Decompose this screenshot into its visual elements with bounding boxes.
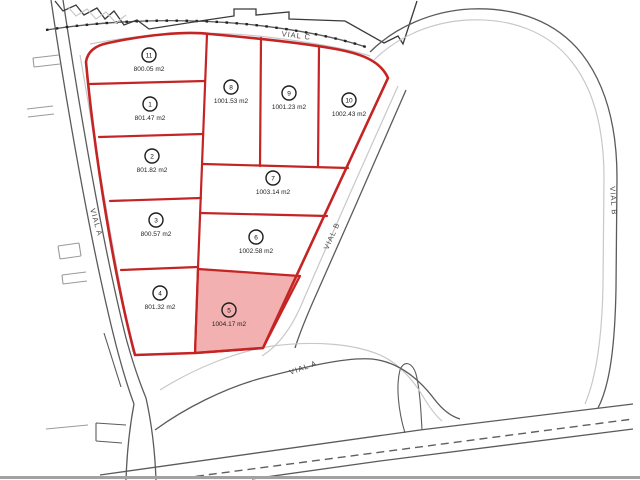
parcel-2-label: 2 801.82 m2 <box>137 149 168 174</box>
road-vial-b-diagonal-curb <box>262 86 398 356</box>
parcel-3-number: 3 <box>154 217 158 224</box>
parcel-10-number: 10 <box>345 97 353 104</box>
parcel-9-number: 9 <box>287 90 291 97</box>
parcel-5-area: 1004.17 m2 <box>212 321 247 328</box>
parcel-2-number: 2 <box>150 153 154 160</box>
parcel-block <box>86 33 388 355</box>
road-network <box>0 0 640 480</box>
parcel-6-area: 1002.58 m2 <box>239 248 274 255</box>
parcel-8-label: 8 1001.53 m2 <box>214 80 249 105</box>
parcel-1-number: 1 <box>148 101 152 108</box>
parcel-6-label: 6 1002.58 m2 <box>239 230 274 255</box>
road-label-vial-b-right: VIAL B <box>608 186 619 216</box>
parcel-4-label: 4 801.32 m2 <box>145 286 176 311</box>
road-vial-a-south-left-edge <box>126 404 134 480</box>
site-plan-canvas: 1 801.47 m2 2 801.82 m2 3 800.57 m2 4 80… <box>0 0 640 480</box>
road-bottom-centerline <box>183 419 633 478</box>
parcel-11-number: 11 <box>146 52 153 59</box>
parcel-5-region <box>195 269 300 353</box>
parcel-9-label: 9 1001.23 m2 <box>272 86 307 111</box>
parcel-3-area: 800.57 m2 <box>141 231 172 238</box>
parcel-10-area: 1002.43 m2 <box>332 111 367 118</box>
parcel-11-area: 800.05 m2 <box>134 66 165 73</box>
parcel-4-number: 4 <box>158 290 162 297</box>
parcel-11-label: 11 800.05 m2 <box>134 48 165 73</box>
parcel-8-number: 8 <box>229 84 233 91</box>
road-vial-a-left-outer-edge <box>51 0 134 404</box>
road-label-vial-a-bottom: VIAL A <box>288 359 318 377</box>
road-vial-b-diagonal-right-edge <box>295 90 406 348</box>
road-vial-b-loop-inner-edge <box>374 20 604 404</box>
parcel-4-area: 801.32 m2 <box>145 304 176 311</box>
parcel-7-number: 7 <box>271 175 275 182</box>
parcel-1-label: 1 801.47 m2 <box>135 97 166 122</box>
parcel-5-number: 5 <box>227 307 231 314</box>
junction-west-branch <box>96 423 126 443</box>
parcel-plan-drawing: 1 801.47 m2 2 801.82 m2 3 800.57 m2 4 80… <box>0 0 640 480</box>
parcel-7-area: 1003.14 m2 <box>256 189 291 196</box>
parcel-2-area: 801.82 m2 <box>137 167 168 174</box>
road-label-vial-b-diagonal: VIAL B <box>322 221 342 251</box>
parcel-9-area: 1001.23 m2 <box>272 104 307 111</box>
road-vial-b-loop-outer-edge <box>370 9 617 408</box>
parcel-10-label: 10 1002.43 m2 <box>332 93 367 118</box>
parcel-8-area: 1001.53 m2 <box>214 98 249 105</box>
parcel-3-label: 3 800.57 m2 <box>141 213 172 238</box>
road-markings <box>27 55 121 429</box>
parcel-6-number: 6 <box>254 234 258 241</box>
parcel-7-label: 7 1003.14 m2 <box>256 171 291 196</box>
road-bottom-lower-edge <box>252 429 633 479</box>
parcel-1-area: 801.47 m2 <box>135 115 166 122</box>
